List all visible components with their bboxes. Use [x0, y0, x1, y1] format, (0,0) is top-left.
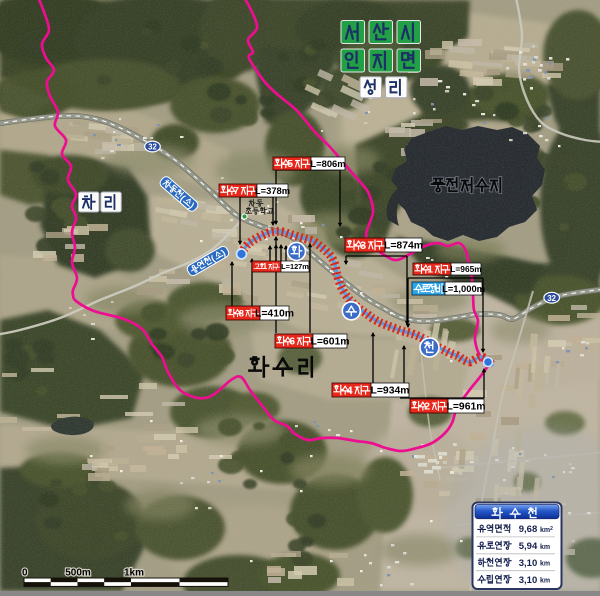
svg-text:32: 32 [148, 143, 157, 152]
svg-text:L=961m: L=961m [447, 402, 486, 413]
svg-text:L=934m: L=934m [371, 386, 410, 397]
svg-text:32: 32 [547, 294, 556, 303]
svg-text:L=874m: L=874m [384, 241, 423, 252]
svg-text:0: 0 [22, 568, 28, 579]
svg-text:5,94: 5,94 [519, 541, 538, 552]
svg-text:5: 5 [287, 159, 293, 170]
svg-text:km: km [540, 578, 550, 585]
svg-text:L=378m: L=378m [255, 185, 290, 196]
svg-text:2: 2 [424, 402, 430, 413]
svg-text:1: 1 [263, 262, 268, 271]
svg-text:1: 1 [427, 265, 433, 276]
svg-text:L=410m: L=410m [255, 309, 294, 320]
svg-text:9,68: 9,68 [519, 524, 538, 535]
svg-text:L=127m: L=127m [281, 262, 309, 271]
svg-text:500m: 500m [65, 568, 91, 579]
svg-text:L=965m: L=965m [450, 264, 481, 274]
svg-text:7: 7 [233, 186, 239, 197]
svg-text:km: km [540, 544, 550, 551]
svg-text:L=806m: L=806m [310, 158, 345, 169]
svg-text:3: 3 [360, 240, 366, 252]
svg-text:1km: 1km [124, 568, 144, 579]
svg-text:L=601m: L=601m [311, 337, 350, 348]
svg-text:8: 8 [239, 308, 244, 318]
svg-text:4: 4 [347, 385, 353, 397]
svg-text:3,10: 3,10 [519, 558, 538, 569]
svg-text:km: km [540, 561, 550, 568]
svg-text:L=1,000m: L=1,000m [442, 283, 485, 294]
svg-text:6: 6 [289, 337, 295, 348]
svg-text:3,10: 3,10 [519, 575, 538, 586]
